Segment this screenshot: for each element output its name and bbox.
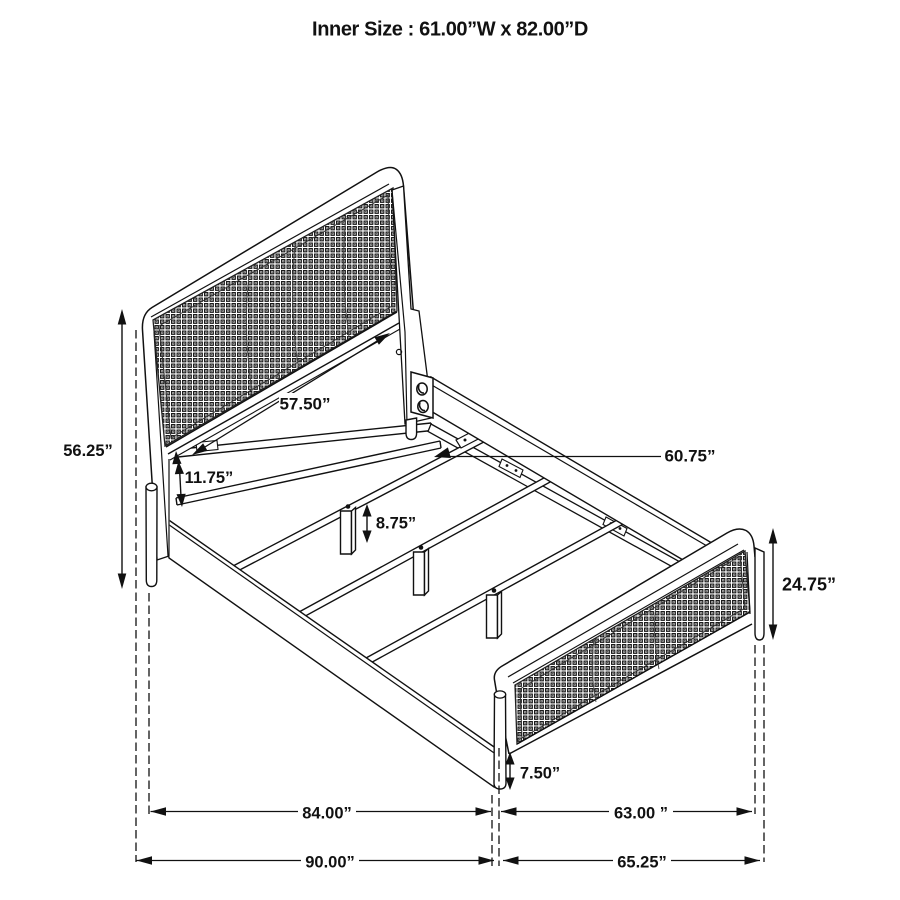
svg-text:60.75”: 60.75” <box>664 447 715 466</box>
svg-text:11.75”: 11.75” <box>185 469 234 487</box>
svg-text:65.25”: 65.25” <box>617 853 667 871</box>
svg-text:56.25”: 56.25” <box>63 442 113 460</box>
svg-text:24.75”: 24.75” <box>782 575 836 595</box>
svg-text:90.00”: 90.00” <box>305 853 355 871</box>
svg-text:Inner Size : 61.00”W x 82.00”D: Inner Size : 61.00”W x 82.00”D <box>312 18 588 40</box>
svg-text:7.50”: 7.50” <box>520 764 560 782</box>
svg-text:57.50”: 57.50” <box>279 395 330 414</box>
svg-text:84.00”: 84.00” <box>302 804 352 822</box>
svg-text:63.00 ”: 63.00 ” <box>614 804 668 822</box>
svg-text:8.75”: 8.75” <box>376 514 416 532</box>
